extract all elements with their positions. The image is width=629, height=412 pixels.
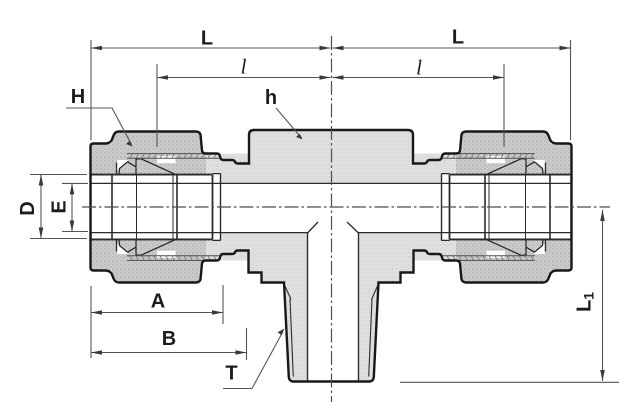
svg-text:L: L [201, 28, 213, 50]
svg-text:D: D [17, 201, 39, 215]
svg-text:T: T [225, 363, 237, 385]
svg-text:l: l [241, 55, 247, 79]
svg-text:H: H [71, 86, 85, 108]
svg-text:L: L [452, 27, 464, 49]
svg-text:B: B [162, 328, 176, 350]
svg-text:A: A [151, 291, 165, 313]
svg-text:l: l [416, 56, 422, 80]
svg-text:E: E [49, 200, 71, 213]
svg-text:h: h [265, 87, 277, 109]
